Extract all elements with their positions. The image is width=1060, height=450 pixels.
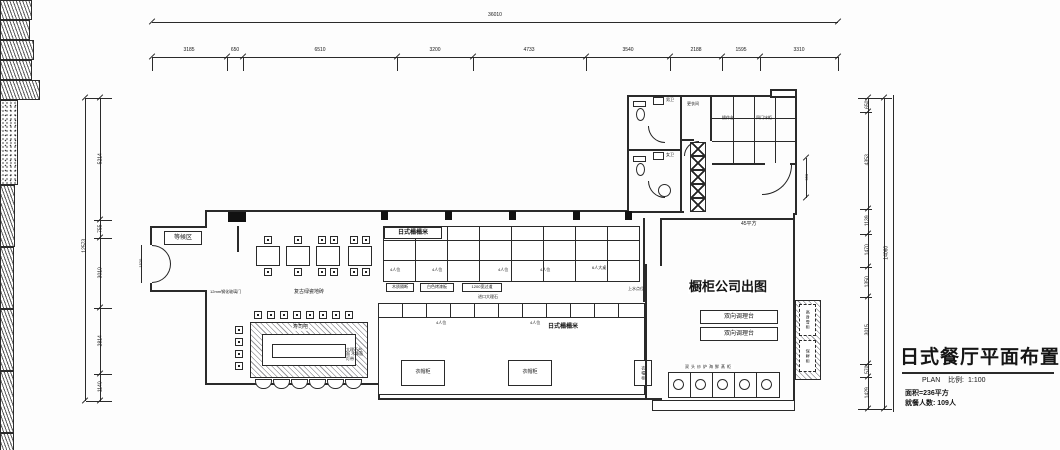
dim-tick xyxy=(803,194,809,200)
bar-stool xyxy=(306,311,314,319)
column xyxy=(228,212,246,222)
waiting-area-box: 等候区 xyxy=(164,231,202,245)
booth-partition xyxy=(0,247,14,309)
shelf-line xyxy=(754,97,755,163)
dim-tick xyxy=(835,18,841,24)
dim-extension xyxy=(722,57,723,71)
entry-door-arc xyxy=(152,245,171,264)
chair xyxy=(264,236,272,244)
booth-divider xyxy=(474,303,475,317)
tatami-upper-label: 日式榻榻米 xyxy=(398,230,428,237)
wall xyxy=(378,398,662,400)
prep-counter-label: 双向调理台 xyxy=(724,331,754,338)
prep-counter-box: 双向调理台 xyxy=(700,310,778,324)
dining-table xyxy=(286,246,310,266)
entry-door-arc xyxy=(152,264,171,283)
dim-extension xyxy=(94,308,112,309)
callout-box: 1200宽过道 xyxy=(462,283,502,292)
floorplan-sheet: 36010 3185 650 6510 3200 4733 3540 2188 … xyxy=(0,0,1060,450)
sink-burner xyxy=(717,379,728,390)
shaft-x-panel xyxy=(690,170,706,184)
fresh-cabinet-label: 保鲜柜 xyxy=(805,349,809,364)
callout-paint-label: 白色烤漆板 xyxy=(427,285,447,289)
bar-stool xyxy=(345,311,353,319)
toilet-bowl xyxy=(636,108,645,121)
bench-seat xyxy=(309,379,326,389)
tatami-upper-box: 日式榻榻米 xyxy=(384,227,442,239)
dim-extension xyxy=(397,57,398,71)
mens-wc-label: 男卫 xyxy=(666,98,674,102)
dim-extension xyxy=(86,401,112,402)
booth-divider xyxy=(618,303,619,317)
booth-divider xyxy=(450,303,451,317)
changing-room-label: 更衣间 xyxy=(687,102,699,106)
booth-divider xyxy=(511,226,512,282)
booth-divider xyxy=(546,303,547,317)
dim-extension xyxy=(760,57,761,71)
booth-divider xyxy=(402,303,403,317)
coat-cabinet-box: 衣帽柜 xyxy=(401,360,445,386)
dim-extension xyxy=(860,297,872,298)
sushi-bar-label: 寿司吧 xyxy=(292,325,309,331)
dim-extension xyxy=(858,98,892,99)
dim-label-total-width: 36010 xyxy=(470,13,520,19)
shelf-line xyxy=(712,141,795,142)
dim-label: 570 xyxy=(865,358,871,382)
tall-fridge-label: 高身雪柜 xyxy=(805,310,809,330)
dim-label: 3010 xyxy=(98,260,104,286)
coat-cabinet-box: 衣帽柜 xyxy=(634,360,652,386)
wall xyxy=(712,163,765,165)
seat-label: 4人位 xyxy=(530,321,540,325)
booth-partition xyxy=(0,371,14,433)
sink-burner xyxy=(695,379,706,390)
bench-seat xyxy=(273,379,290,389)
booth-divider xyxy=(543,226,544,282)
chair xyxy=(362,236,370,244)
equipment-divider xyxy=(690,372,691,398)
seat-label: 4人位 xyxy=(436,321,446,325)
equipment-divider xyxy=(712,372,713,398)
wall xyxy=(660,218,662,266)
chair xyxy=(318,236,326,244)
cistern xyxy=(653,152,664,160)
dim-extension xyxy=(227,57,228,71)
bar-stool xyxy=(293,311,301,319)
column xyxy=(625,211,632,220)
bench-seat xyxy=(327,379,344,389)
wall xyxy=(150,226,152,245)
bar-stool xyxy=(280,311,288,319)
equipment-divider xyxy=(756,372,757,398)
callout-wood-label: 木质隔断 xyxy=(392,285,408,289)
booth-divider xyxy=(575,226,576,282)
chair xyxy=(318,268,326,276)
wall xyxy=(205,210,629,212)
kitchen-title: 橱柜公司出图 xyxy=(688,280,768,294)
booth-bench xyxy=(0,60,32,80)
bar-stool xyxy=(235,338,243,346)
booth-divider xyxy=(607,226,608,282)
dim-extension xyxy=(586,57,587,71)
bar-stool xyxy=(319,311,327,319)
wall xyxy=(660,218,795,220)
booth-divider xyxy=(479,226,480,282)
storage-fridge-label: 四门冰柜 xyxy=(756,116,772,120)
dim-label: 4733 xyxy=(514,48,544,54)
dim-label: 6510 xyxy=(305,48,335,54)
booth-bench xyxy=(0,0,32,20)
scale-label: 比例: xyxy=(948,377,964,385)
dim-label: 3185 xyxy=(174,48,204,54)
booth-bench xyxy=(0,40,34,60)
toilet-tank xyxy=(633,156,646,162)
tatami-lower-label: 日式榻榻米 xyxy=(548,324,578,331)
storage-counter-label: 操作台 xyxy=(722,116,734,120)
bar-worktop xyxy=(272,344,346,358)
bench-seat xyxy=(345,379,362,389)
dim-label: 3310 xyxy=(784,48,814,54)
dim-label: 1470 xyxy=(865,238,871,262)
stove-row-label: 双头炒炉海鲜蒸柜 xyxy=(684,365,734,369)
bar-stool xyxy=(267,311,275,319)
dim-label: 1139 xyxy=(865,209,871,233)
chair xyxy=(330,268,338,276)
dim-label: 650 xyxy=(220,48,250,54)
door-arc xyxy=(684,141,699,156)
wall xyxy=(150,290,207,292)
chair xyxy=(294,268,302,276)
dim-label: 2814 xyxy=(98,328,104,354)
chair xyxy=(330,236,338,244)
dim-label: 14060 xyxy=(884,238,890,268)
booth-partition xyxy=(0,185,15,247)
wall xyxy=(795,95,797,215)
dim-extension xyxy=(860,267,872,268)
dim-label: 950 xyxy=(805,167,809,187)
dim-label: 1595 xyxy=(726,48,756,54)
area-text: 面积=236平方 xyxy=(905,390,949,398)
wall xyxy=(205,300,207,385)
dim-label: 755 xyxy=(98,216,104,242)
door-arc xyxy=(648,181,665,198)
bar-stool xyxy=(332,311,340,319)
wall xyxy=(237,226,239,252)
column xyxy=(445,211,452,220)
kitchen-area-label: 45平方 xyxy=(740,222,758,228)
bench-seat xyxy=(291,379,308,389)
dining-table xyxy=(348,246,372,266)
bar-stool xyxy=(235,350,243,358)
dim-extension xyxy=(670,57,671,71)
toilet-bowl xyxy=(636,163,645,176)
tall-fridge-box: 高身雪柜 xyxy=(799,304,816,336)
dim-label: 1350 xyxy=(865,270,871,294)
prep-counter-box: 双向调理台 xyxy=(700,327,778,341)
cistern xyxy=(653,97,664,105)
booth-bench xyxy=(0,80,40,100)
coat-cabinet-box: 衣帽柜 xyxy=(508,360,552,386)
chair xyxy=(294,236,302,244)
dim-label: 2188 xyxy=(681,48,711,54)
booth-divider xyxy=(447,226,448,282)
bar-stool xyxy=(235,326,243,334)
coat-cabinet-label: 衣帽柜 xyxy=(522,370,537,376)
dining-table xyxy=(256,246,280,266)
wall xyxy=(680,95,682,213)
dim-label: 3200 xyxy=(420,48,450,54)
dim-label: 1429 xyxy=(865,381,871,405)
coat-cabinet-label: 衣帽柜 xyxy=(415,370,430,376)
scale-value: 1:100 xyxy=(968,377,986,385)
wall xyxy=(629,149,682,151)
column xyxy=(381,211,388,220)
wall xyxy=(682,139,694,141)
seat-label: 4人位 xyxy=(540,268,550,272)
dim-extension xyxy=(838,57,839,71)
sink-burner xyxy=(673,379,684,390)
callout-aisle-label: 1200宽过道 xyxy=(472,285,493,289)
dim-extension xyxy=(152,57,153,71)
shaft-x-panel xyxy=(690,198,706,212)
shaft-x-panel xyxy=(690,156,706,170)
booth-divider xyxy=(570,303,571,317)
dim-label: 650 xyxy=(865,93,871,117)
titleblock-separator xyxy=(893,95,894,412)
shelf-line xyxy=(775,97,776,163)
waiting-area-label: 等候区 xyxy=(174,235,192,242)
booth-line xyxy=(378,317,645,318)
callout-box: 木质隔断 xyxy=(386,283,414,292)
chair xyxy=(350,236,358,244)
toilet-tank xyxy=(633,101,646,107)
equipment-divider xyxy=(734,372,735,398)
sink-burner xyxy=(739,379,750,390)
dim-label: 1140 xyxy=(98,374,104,400)
entry-door-note: 12mm钢化玻璃门 xyxy=(210,290,241,294)
booth-divider xyxy=(522,303,523,317)
dim-label: 4353 xyxy=(865,148,871,172)
booth-divider xyxy=(426,303,427,317)
booth-divider xyxy=(594,303,595,317)
dining-table xyxy=(316,246,340,266)
marble-note: 进口大理石 xyxy=(478,295,498,299)
drawing-title: 日式餐厅平面布置图 xyxy=(900,348,1060,369)
shelf-line xyxy=(733,97,734,163)
door-arc xyxy=(762,165,792,195)
dim-label: 3540 xyxy=(613,48,643,54)
dim-extension xyxy=(860,234,872,235)
wall xyxy=(627,211,684,213)
dim-line-left-segments xyxy=(100,98,101,401)
title-underline xyxy=(902,372,1054,374)
bar-note: 大理石台面 木饰面 灯带 xyxy=(346,348,364,361)
shaft-x-panel xyxy=(690,184,706,198)
fresh-cabinet-box: 保鲜柜 xyxy=(799,340,816,372)
wall xyxy=(150,226,207,228)
seat-label: 6人大桌 xyxy=(592,266,606,270)
booth-partition xyxy=(0,433,14,450)
dim-label: 3015 xyxy=(865,318,871,342)
dim-line-top-total xyxy=(152,22,838,23)
seat-label: 4人位 xyxy=(390,268,400,272)
wall xyxy=(645,264,647,398)
chair xyxy=(362,268,370,276)
prep-counter-label: 双向调理台 xyxy=(724,314,754,321)
dim-extension xyxy=(243,57,244,71)
dim-extension xyxy=(86,98,112,99)
chair xyxy=(264,268,272,276)
callout-box: 白色烤漆板 xyxy=(420,283,454,292)
sink-burner xyxy=(761,379,772,390)
column xyxy=(573,211,580,220)
bar-stool xyxy=(254,311,262,319)
wall xyxy=(627,95,629,213)
plan-label: PLAN xyxy=(922,377,940,385)
door-arc xyxy=(648,126,665,143)
booth-partition xyxy=(0,309,14,371)
dim-label: 12573 xyxy=(82,231,88,261)
booth-bench xyxy=(0,20,30,40)
seat-label: 4人位 xyxy=(432,268,442,272)
parapet-step xyxy=(652,400,795,411)
chair xyxy=(350,268,358,276)
seat-label: 4人位 xyxy=(498,268,508,272)
dim-extension xyxy=(473,57,474,71)
capacity-text: 就餐人数: 109人 xyxy=(905,400,956,408)
dim-extension xyxy=(858,409,892,410)
planter-strip xyxy=(0,100,18,185)
column xyxy=(509,211,516,220)
bench-seat xyxy=(255,379,272,389)
callout-water-label: 上水点位 xyxy=(628,287,644,291)
womens-wc-label: 女卫 xyxy=(666,153,674,157)
dim-label: 5214 xyxy=(98,146,104,172)
bar-stool xyxy=(235,362,243,370)
floor-note: 复古绿瓷地砖 xyxy=(294,290,324,296)
dim-label: 1520 xyxy=(139,253,143,273)
booth-divider xyxy=(498,303,499,317)
dim-line-top-segments xyxy=(152,57,838,58)
